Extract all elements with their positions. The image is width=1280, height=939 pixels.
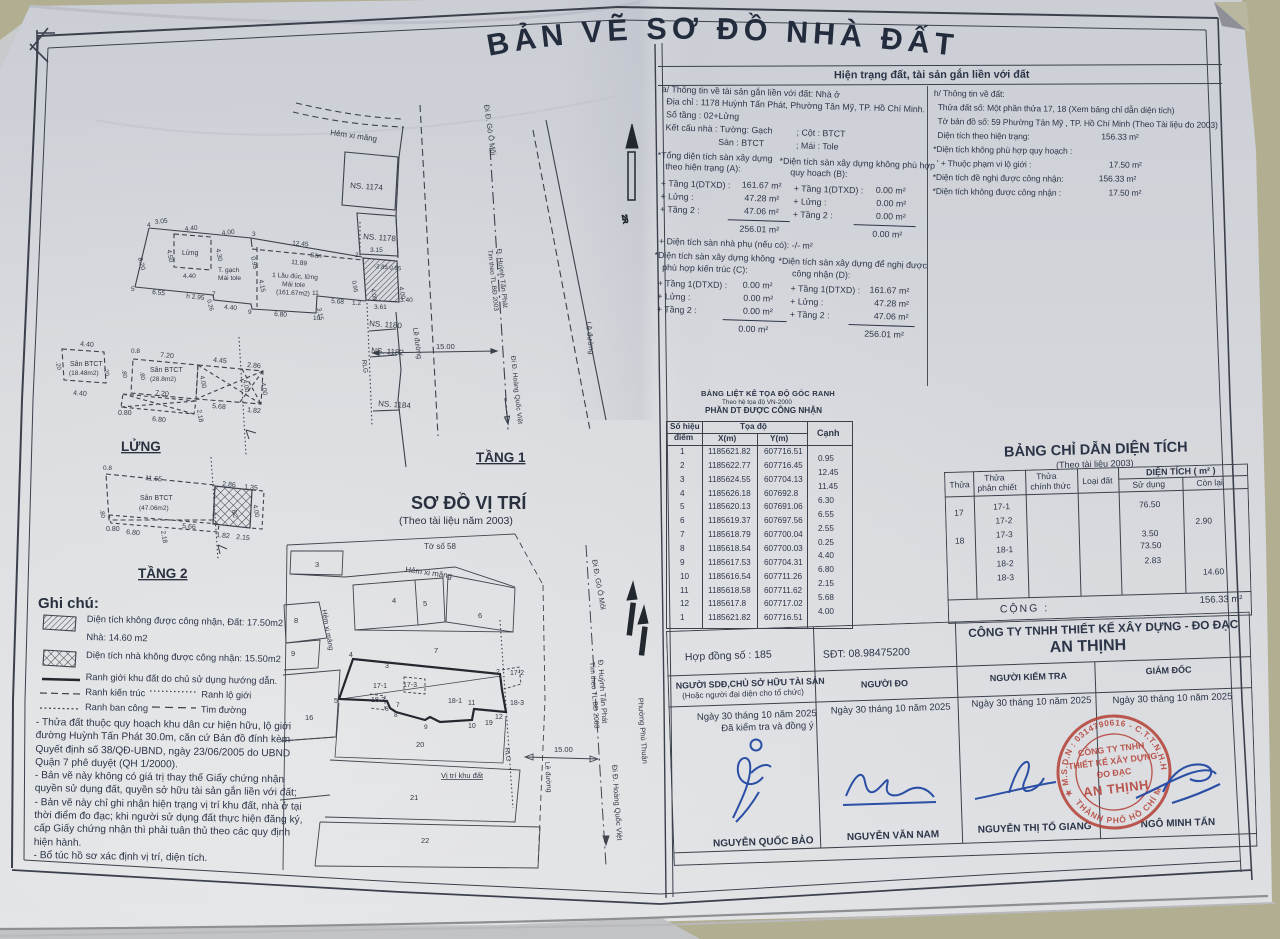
svg-text:ĐO ĐẠC: ĐO ĐẠC: [1096, 766, 1132, 780]
svg-text:THÀNH PHỐ HỒ CHÍ MINH: THÀNH PHỐ HỒ CHÍ MINH: [0, 0, 1167, 939]
